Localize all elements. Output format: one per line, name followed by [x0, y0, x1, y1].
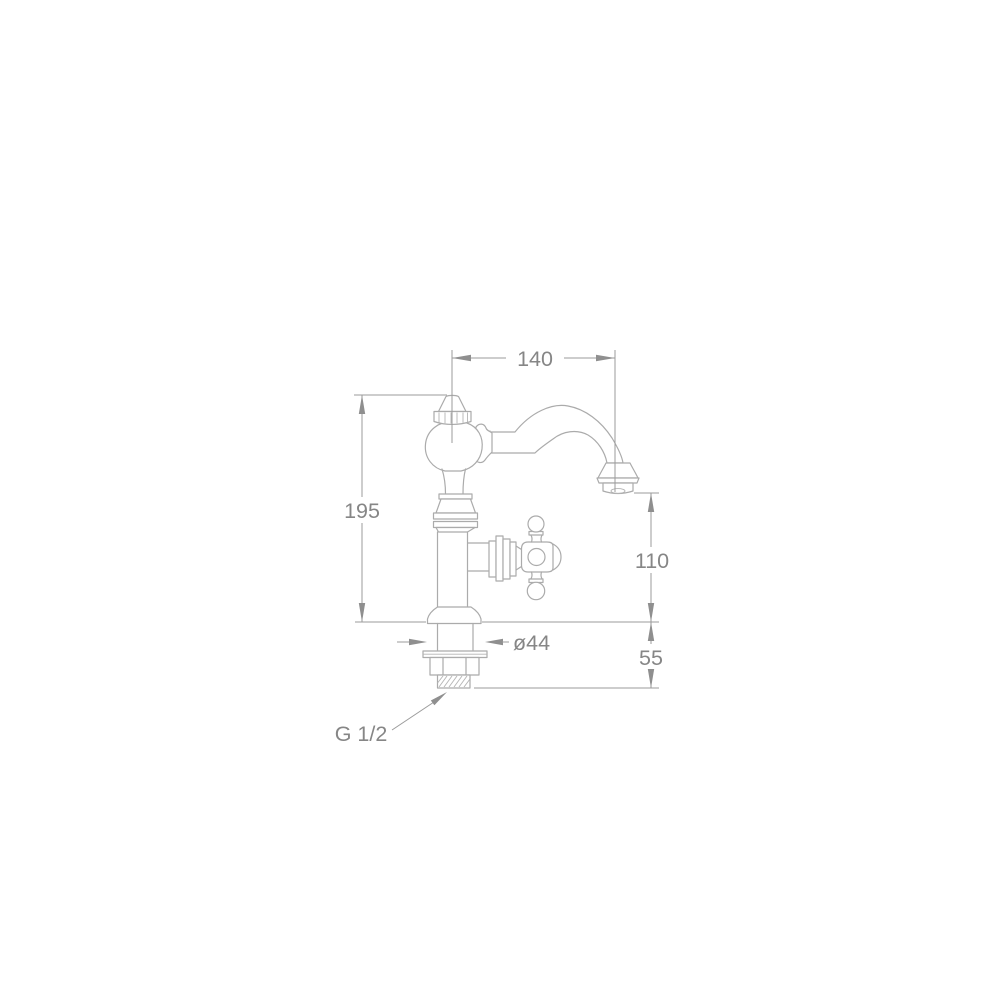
label-thread-size: G 1/2	[335, 722, 388, 746]
handle-bottom-arm	[527, 572, 544, 600]
dim-195-arrow-bottom	[359, 603, 365, 622]
dim-outlet-height: 110	[634, 493, 669, 622]
dim-140-arrow-right	[596, 355, 615, 361]
dim-55-arrow-bottom	[648, 669, 654, 688]
washer-flange	[423, 651, 487, 658]
dim-label-overall-height: 195	[344, 499, 380, 523]
collar-rings	[434, 494, 478, 532]
dim-label-base-diameter: ø44	[513, 631, 550, 655]
dim-44-arrow-right	[485, 639, 503, 645]
thread-size-callout: G 1/2	[335, 692, 447, 746]
dim-110-arrow-top	[648, 493, 654, 512]
thread-leader-arrow	[431, 692, 447, 705]
handle-bonnet	[489, 536, 522, 581]
base-bell	[428, 607, 482, 624]
dim-195-arrow-top	[359, 395, 365, 414]
spout-outlet-rim	[597, 478, 639, 483]
spout-tube	[490, 405, 623, 463]
dim-overall-height: 195	[344, 395, 447, 622]
mounting-cylinder	[438, 624, 474, 652]
faucet-body	[425, 421, 482, 471]
dim-44-arrow-left	[409, 639, 427, 645]
handle-top-arm	[528, 516, 544, 542]
column	[438, 532, 468, 607]
dim-label-spout-reach: 140	[517, 347, 553, 371]
dim-110-arrow-bottom	[648, 603, 654, 622]
faucet-dimension-drawing: 140 195 110	[0, 0, 1000, 1000]
spout-outlet-bell	[598, 463, 638, 478]
dim-label-outlet-height: 110	[635, 549, 669, 573]
dim-shank-length: 55	[474, 622, 663, 688]
neck	[442, 469, 466, 494]
handle-front-arm	[528, 549, 545, 566]
thread-leader-line	[392, 702, 434, 730]
dim-140-arrow-left	[452, 355, 471, 361]
hex-locknut	[430, 658, 479, 676]
handle-branch	[468, 543, 490, 571]
threaded-shank	[438, 675, 471, 688]
dim-55-arrow-top	[648, 622, 654, 641]
handle-hub-cap	[553, 544, 561, 570]
dim-label-shank-length: 55	[639, 646, 663, 670]
technical-drawing-page: 140 195 110	[0, 0, 1000, 1000]
